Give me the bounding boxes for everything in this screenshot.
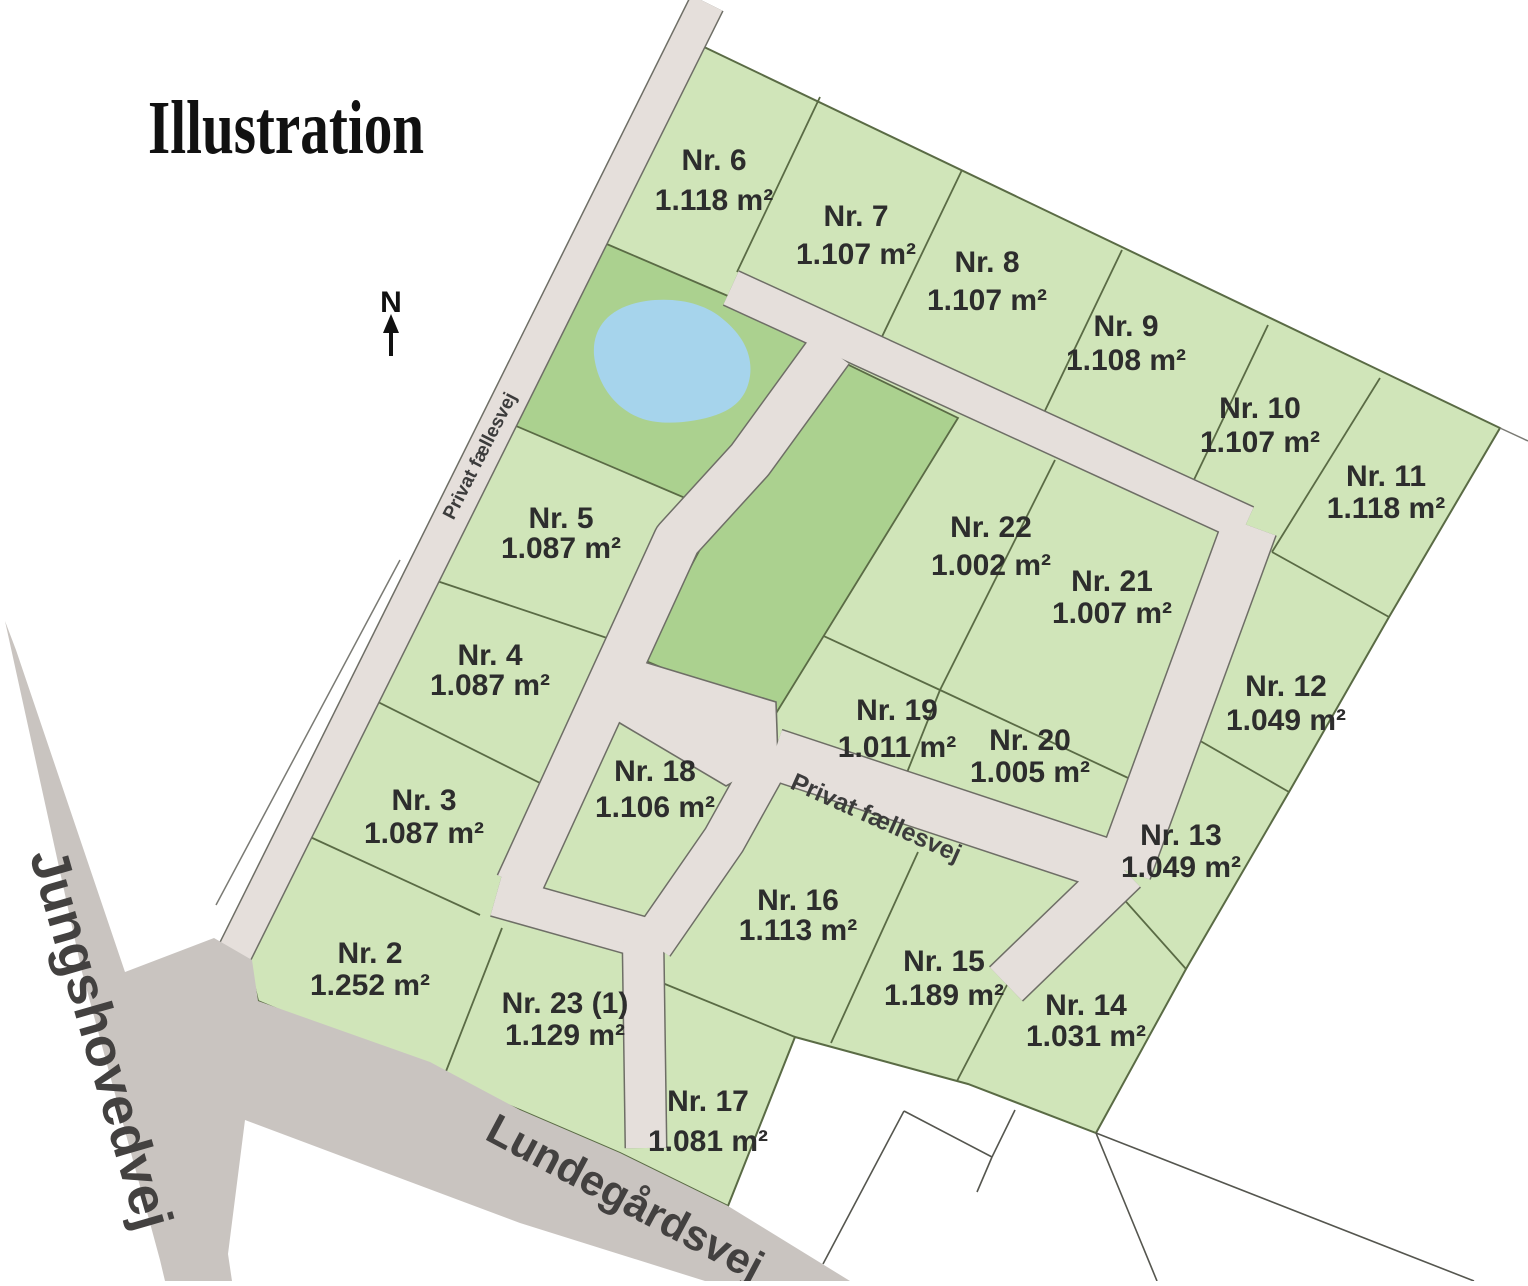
svg-text:Nr. 5: Nr. 5 <box>528 502 593 535</box>
svg-text:Nr. 14: Nr. 14 <box>1045 989 1127 1022</box>
svg-text:1.049 m²: 1.049 m² <box>1121 851 1241 884</box>
svg-text:1.252 m²: 1.252 m² <box>310 969 430 1002</box>
svg-text:1.031 m²: 1.031 m² <box>1026 1020 1146 1053</box>
svg-text:1.005 m²: 1.005 m² <box>970 756 1090 789</box>
svg-text:1.113 m²: 1.113 m² <box>739 914 857 947</box>
svg-text:Nr. 2: Nr. 2 <box>337 937 402 970</box>
svg-text:Nr. 18: Nr. 18 <box>614 755 696 788</box>
svg-text:1.107 m²: 1.107 m² <box>796 238 916 271</box>
svg-text:Nr. 9: Nr. 9 <box>1093 310 1158 343</box>
svg-text:Nr. 7: Nr. 7 <box>823 200 888 233</box>
svg-text:Nr. 22: Nr. 22 <box>950 511 1032 544</box>
svg-text:1.049 m²: 1.049 m² <box>1226 704 1346 737</box>
svg-text:1.129 m²: 1.129 m² <box>505 1019 625 1052</box>
svg-text:1.107 m²: 1.107 m² <box>1200 426 1320 459</box>
svg-text:1.007 m²: 1.007 m² <box>1052 597 1172 630</box>
svg-text:Nr. 23 (1): Nr. 23 (1) <box>502 987 629 1020</box>
svg-text:Nr. 8: Nr. 8 <box>954 246 1019 279</box>
svg-text:Nr. 6: Nr. 6 <box>681 144 746 177</box>
svg-text:Nr. 15: Nr. 15 <box>903 945 985 978</box>
svg-text:1.011 m²: 1.011 m² <box>838 731 956 764</box>
svg-text:Nr. 17: Nr. 17 <box>667 1085 749 1118</box>
svg-text:Nr. 20: Nr. 20 <box>989 724 1071 757</box>
svg-text:Illustration: Illustration <box>148 86 424 170</box>
svg-text:Nr. 11: Nr. 11 <box>1346 460 1426 493</box>
svg-text:Nr. 3: Nr. 3 <box>391 784 456 817</box>
svg-text:1.106 m²: 1.106 m² <box>595 791 715 824</box>
svg-text:1.108 m²: 1.108 m² <box>1066 344 1186 377</box>
svg-text:Nr. 10: Nr. 10 <box>1219 392 1301 425</box>
svg-text:1.118 m²: 1.118 m² <box>1327 492 1445 525</box>
svg-text:1.118 m²: 1.118 m² <box>655 184 773 217</box>
svg-text:1.087 m²: 1.087 m² <box>430 669 550 702</box>
svg-text:Nr. 13: Nr. 13 <box>1140 819 1222 852</box>
svg-text:Nr. 16: Nr. 16 <box>757 884 839 917</box>
svg-text:1.002 m²: 1.002 m² <box>931 549 1051 582</box>
svg-text:1.081 m²: 1.081 m² <box>648 1125 768 1158</box>
svg-text:1.189 m²: 1.189 m² <box>884 979 1004 1012</box>
svg-text:Nr. 12: Nr. 12 <box>1245 670 1327 703</box>
svg-text:Nr. 21: Nr. 21 <box>1071 565 1153 598</box>
svg-text:1.107 m²: 1.107 m² <box>927 284 1047 317</box>
svg-text:1.087 m²: 1.087 m² <box>364 817 484 850</box>
svg-text:Nr. 4: Nr. 4 <box>457 639 522 672</box>
svg-text:Nr. 19: Nr. 19 <box>856 694 938 727</box>
svg-text:1.087 m²: 1.087 m² <box>501 532 621 565</box>
